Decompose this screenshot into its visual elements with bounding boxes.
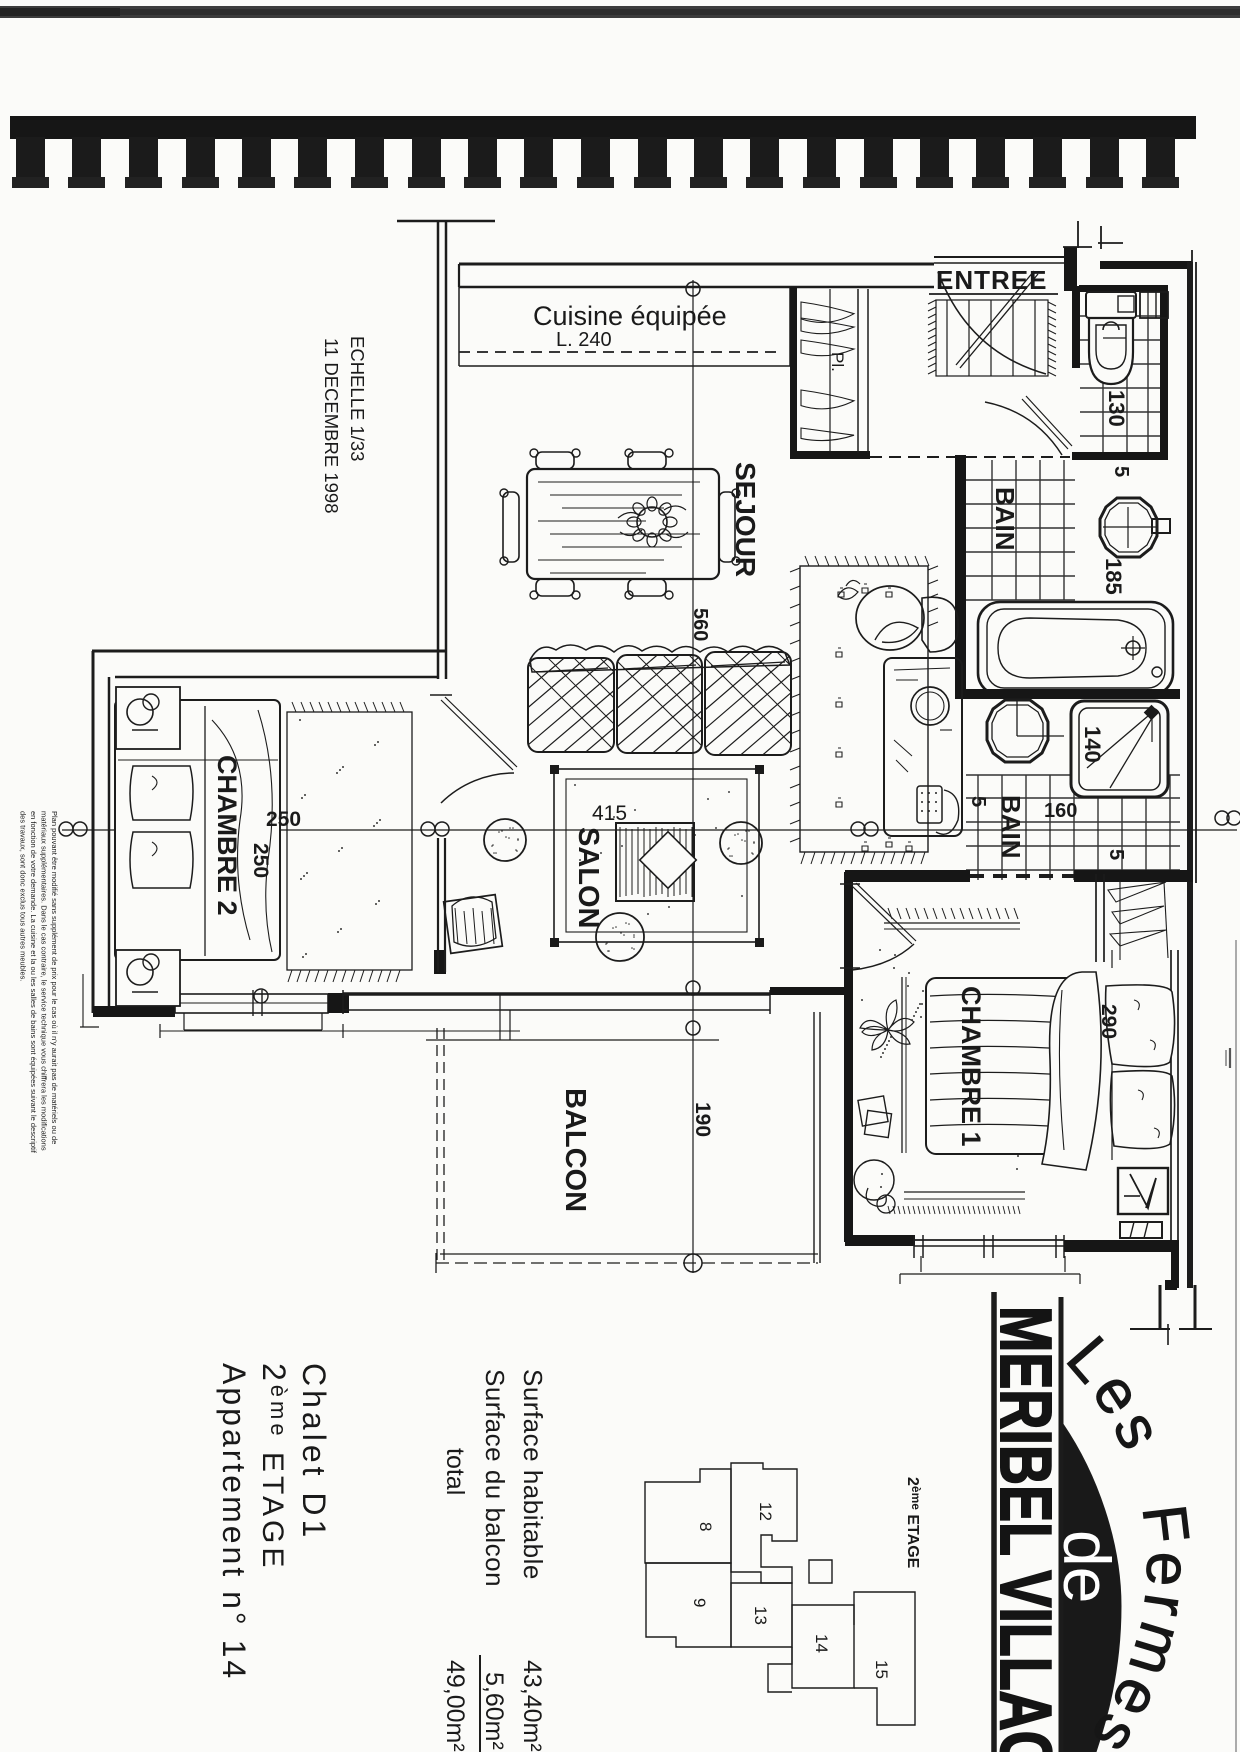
svg-text:5,60m²: 5,60m² xyxy=(480,1672,508,1750)
svg-text:en fonction de votre demande.: en fonction de votre demande. La cuisine… xyxy=(29,811,38,1154)
svg-text:Pl.: Pl. xyxy=(828,352,847,372)
svg-text:13: 13 xyxy=(751,1606,770,1625)
svg-text:190: 190 xyxy=(691,1102,714,1137)
svg-text:49,00m²: 49,00m² xyxy=(441,1660,469,1752)
svg-text:5: 5 xyxy=(1105,849,1127,860)
svg-text:250: 250 xyxy=(249,843,272,878)
svg-text:43,40m²: 43,40m² xyxy=(518,1660,546,1752)
svg-text:matériaux supplémentaires. Dan: matériaux supplémentaires. Dans le cas c… xyxy=(40,811,49,1151)
svg-text:5: 5 xyxy=(1110,466,1132,477)
svg-text:5: 5 xyxy=(967,796,989,807)
svg-text:Cuisine équipée: Cuisine équipée xyxy=(533,301,727,331)
svg-text:11 DECEMBRE 1998: 11 DECEMBRE 1998 xyxy=(321,338,342,514)
svg-text:ENTREE: ENTREE xyxy=(936,265,1047,295)
svg-text:Appartement n° 14: Appartement n° 14 xyxy=(216,1363,252,1681)
svg-text:185: 185 xyxy=(1101,558,1126,595)
svg-text:ECHELLE 1/33: ECHELLE 1/33 xyxy=(347,336,368,461)
svg-text:Plan pouvant être modifié sans: Plan pouvant être modifié sans supplémen… xyxy=(50,811,59,1144)
svg-text:Surface habitable: Surface habitable xyxy=(518,1369,548,1580)
svg-text:total: total xyxy=(441,1448,469,1495)
svg-text:CHAMBRE 2: CHAMBRE 2 xyxy=(212,755,242,916)
svg-text:de: de xyxy=(1050,1530,1124,1603)
svg-text:Chalet D1: Chalet D1 xyxy=(296,1363,332,1541)
svg-text:290: 290 xyxy=(1097,1004,1120,1039)
svg-text:160: 160 xyxy=(1044,800,1077,822)
svg-text:250: 250 xyxy=(266,808,301,831)
svg-text:CHAMBRE 1: CHAMBRE 1 xyxy=(956,986,986,1147)
svg-text:BAIN: BAIN xyxy=(996,795,1026,859)
svg-text:BALCON: BALCON xyxy=(559,1088,591,1212)
svg-text:560: 560 xyxy=(689,608,711,641)
svg-text:415: 415 xyxy=(592,802,627,825)
svg-text:L. 240: L. 240 xyxy=(556,329,612,351)
svg-text:140: 140 xyxy=(1080,726,1105,763)
svg-text:130: 130 xyxy=(1104,390,1129,427)
svg-text:12: 12 xyxy=(756,1502,775,1521)
svg-text:9: 9 xyxy=(690,1598,709,1607)
svg-text:BAIN: BAIN xyxy=(990,487,1020,551)
svg-text:14: 14 xyxy=(812,1634,831,1653)
svg-text:8: 8 xyxy=(696,1522,715,1531)
svg-text:SALON: SALON xyxy=(572,827,604,929)
svg-text:MERIBEL VILLAGE: MERIBEL VILLAGE xyxy=(985,1306,1065,1752)
svg-text:Surface du balcon: Surface du balcon xyxy=(480,1369,510,1587)
svg-text:des travaux, sont donc exclus: des travaux, sont donc exclus tous autre… xyxy=(19,811,28,982)
svg-text:15: 15 xyxy=(872,1660,891,1679)
